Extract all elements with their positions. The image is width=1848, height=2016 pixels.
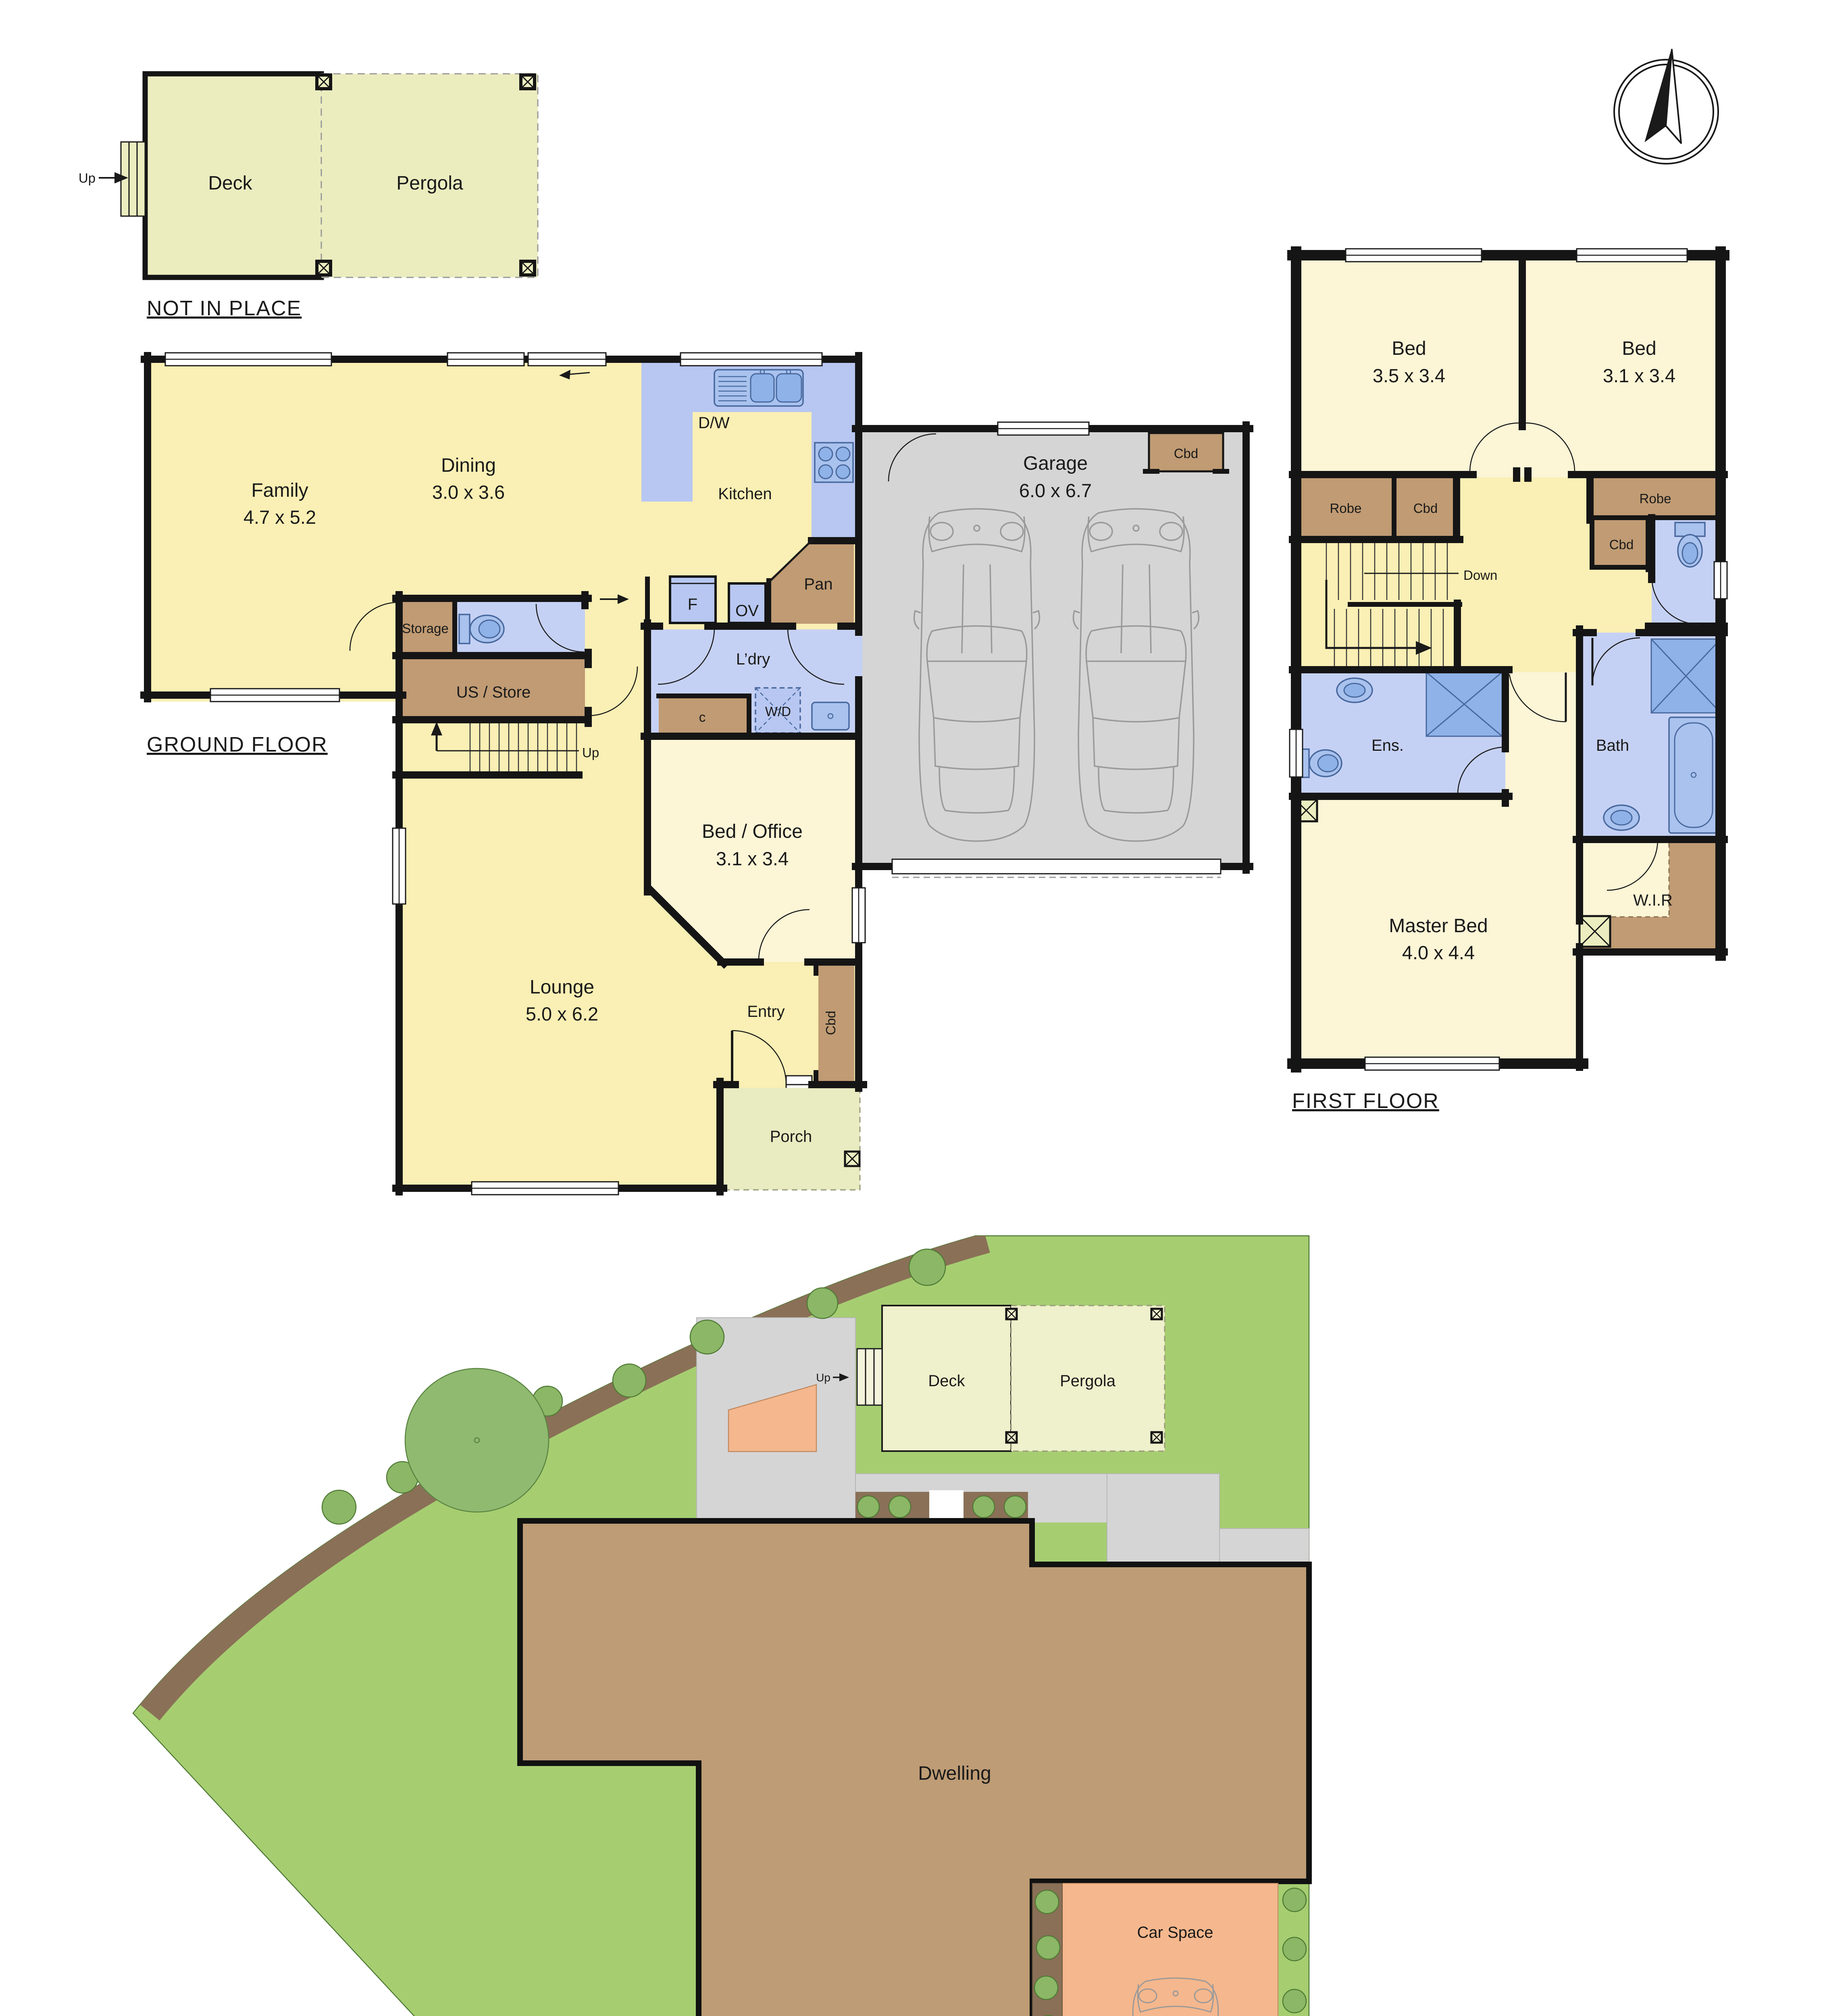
svg-text:Pergola: Pergola: [396, 173, 463, 194]
svg-text:Deck: Deck: [208, 173, 252, 194]
svg-text:Car Space: Car Space: [1137, 1924, 1213, 1941]
svg-text:4.0 x 4.4: 4.0 x 4.4: [1402, 942, 1475, 963]
svg-text:3.1 x 3.4: 3.1 x 3.4: [716, 848, 789, 869]
svg-text:6.0 x 6.7: 6.0 x 6.7: [1019, 480, 1092, 501]
svg-text:3.1 x 3.4: 3.1 x 3.4: [1603, 365, 1675, 386]
svg-text:Robe: Robe: [1330, 501, 1362, 516]
svg-text:Porch: Porch: [770, 1128, 812, 1145]
svg-text:Bed: Bed: [1392, 338, 1426, 359]
svg-text:Up: Up: [582, 745, 599, 760]
svg-text:5.0 x 6.2: 5.0 x 6.2: [526, 1003, 598, 1025]
svg-text:F: F: [688, 596, 697, 613]
svg-text:FIRST FLOOR: FIRST FLOOR: [1292, 1089, 1439, 1113]
svg-text:Bed: Bed: [1622, 338, 1656, 359]
svg-text:c: c: [699, 710, 706, 725]
svg-text:3.0 x 3.6: 3.0 x 3.6: [432, 481, 505, 503]
svg-text:OV: OV: [735, 602, 759, 620]
svg-text:Deck: Deck: [928, 1372, 965, 1390]
svg-text:Robe: Robe: [1640, 491, 1671, 506]
svg-text:Cbd: Cbd: [1413, 501, 1438, 516]
svg-text:Pan: Pan: [804, 575, 832, 593]
svg-text:D/W: D/W: [698, 414, 730, 432]
svg-text:Dining: Dining: [441, 455, 496, 476]
svg-text:Up: Up: [816, 1371, 830, 1384]
svg-text:Bath: Bath: [1596, 737, 1629, 754]
svg-text:Entry: Entry: [747, 1003, 785, 1020]
svg-text:Bed / Office: Bed / Office: [702, 821, 803, 842]
svg-text:Family: Family: [251, 480, 308, 501]
svg-text:3.5 x 3.4: 3.5 x 3.4: [1373, 365, 1445, 386]
svg-text:Pergola: Pergola: [1060, 1372, 1116, 1390]
svg-text:US / Store: US / Store: [456, 683, 531, 701]
svg-text:Storage: Storage: [402, 621, 449, 636]
svg-text:Lounge: Lounge: [530, 977, 594, 998]
svg-text:Up: Up: [79, 171, 96, 185]
svg-text:Cbd: Cbd: [823, 1011, 838, 1035]
svg-text:Ens.: Ens.: [1371, 737, 1404, 754]
svg-text:Cbd: Cbd: [1609, 537, 1634, 552]
svg-text:GROUND FLOOR: GROUND FLOOR: [147, 733, 328, 756]
svg-text:L’dry: L’dry: [736, 650, 770, 668]
svg-text:Garage: Garage: [1023, 453, 1088, 474]
svg-text:Dwelling: Dwelling: [918, 1763, 991, 1784]
svg-text:4.7 x 5.2: 4.7 x 5.2: [243, 506, 316, 528]
svg-text:NOT IN PLACE: NOT IN PLACE: [147, 297, 302, 320]
svg-text:Master Bed: Master Bed: [1389, 915, 1488, 937]
svg-text:Cbd: Cbd: [1174, 446, 1199, 461]
svg-text:Down: Down: [1463, 568, 1497, 583]
svg-text:W.I.R: W.I.R: [1633, 891, 1673, 909]
svg-text:W/D: W/D: [765, 704, 791, 719]
svg-text:Kitchen: Kitchen: [718, 485, 772, 503]
